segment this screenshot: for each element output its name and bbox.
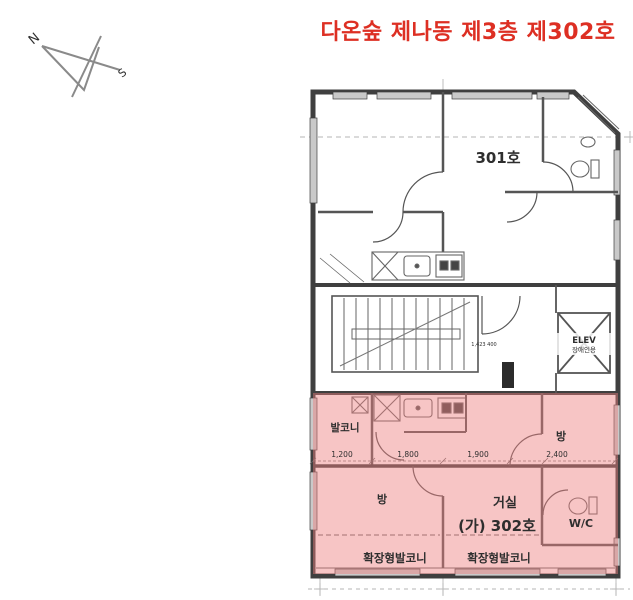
stair-note: 1,423 400 xyxy=(471,342,496,348)
floor-plan-canvas: N S xyxy=(0,0,633,600)
compass-s-label: S xyxy=(116,66,130,80)
compass: N S xyxy=(26,30,129,97)
room-right-label: 방 xyxy=(556,429,566,443)
compass-n-label: N xyxy=(26,30,43,48)
stair-core: ELEV 장애인용 1,423 400 xyxy=(332,285,615,393)
window xyxy=(377,92,431,99)
wc-label: W/C xyxy=(569,517,593,530)
door-arc xyxy=(373,212,403,242)
unit-302-label: (가) 302호 xyxy=(458,517,536,535)
dim-1800: 1,800 xyxy=(397,450,419,459)
room-left-label: 방 xyxy=(377,492,387,506)
stair-treads xyxy=(340,298,470,370)
dim-1900: 1,900 xyxy=(467,450,489,459)
window xyxy=(614,150,620,195)
room-label-301: 301호 xyxy=(475,149,520,167)
dim-2400: 2,400 xyxy=(546,450,568,459)
ext-balcony-left-label: 확장형발코니 xyxy=(363,551,426,565)
door-arc xyxy=(482,296,520,334)
dim-1200: 1,200 xyxy=(331,450,353,459)
door-arc xyxy=(507,192,537,222)
kitchen-counter xyxy=(372,252,464,280)
unit-301: 301호 xyxy=(318,92,618,283)
living-label: 거실 xyxy=(493,495,517,511)
ext-balcony-right-label: 확장형발코니 xyxy=(467,551,530,565)
utility-hatch xyxy=(320,254,364,283)
door-arc xyxy=(403,172,443,212)
unit-302-highlight xyxy=(313,393,618,574)
toilet-icon xyxy=(571,160,599,178)
window xyxy=(333,92,367,99)
door-arc xyxy=(543,162,573,192)
window xyxy=(310,118,317,203)
sink-icon xyxy=(581,137,595,147)
balcony-label: 발코니 xyxy=(331,421,360,434)
elevator-sublabel: 장애인용 xyxy=(572,345,596,354)
window xyxy=(614,220,620,260)
elevator-label: ELEV xyxy=(572,336,596,346)
entry-door xyxy=(502,362,514,388)
window xyxy=(452,92,532,99)
